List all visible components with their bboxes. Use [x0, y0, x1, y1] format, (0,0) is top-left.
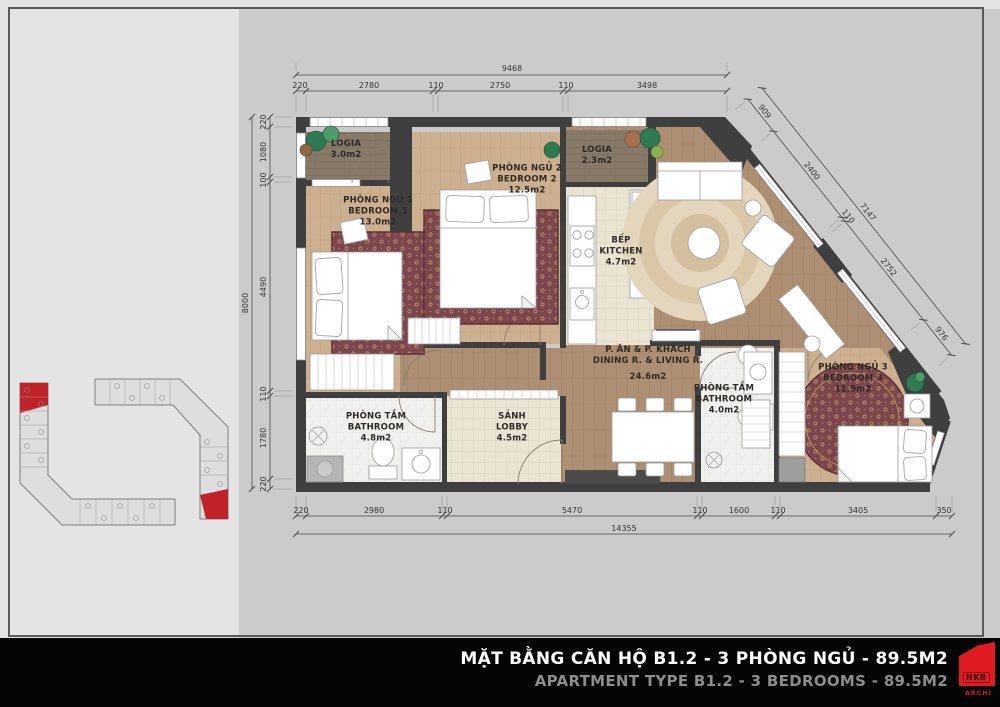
sheet-title-en: APARTMENT TYPE B1.2 - 3 BEDROOMS - 89.5M…	[535, 672, 948, 690]
svg-text:5470: 5470	[562, 506, 582, 515]
svg-text:3405: 3405	[848, 506, 868, 515]
bedroom1-wardrobe	[310, 354, 394, 390]
svg-text:9468: 9468	[502, 64, 522, 73]
key-plan	[20, 379, 228, 525]
living-sofa	[658, 162, 742, 200]
logia2-window	[572, 118, 646, 127]
bathroom1-washer	[307, 456, 343, 482]
logia1-door-window	[312, 180, 360, 187]
svg-text:110: 110	[428, 81, 443, 90]
dimension-bottom: 220 2980 110 5470 110 1600 110 3405 350 …	[293, 496, 955, 537]
svg-text:110: 110	[437, 506, 452, 515]
label-bedroom1: PHÒNG NGỦ 1 BEDROOM 1 13.0m2	[343, 195, 413, 228]
bedroom2-nightstand	[464, 160, 491, 184]
svg-text:3498: 3498	[637, 81, 657, 90]
label-bedroom3: PHÒNG NGỦ 3 BEDROOM 3 11.9m2	[818, 362, 888, 395]
svg-text:220: 220	[293, 506, 308, 515]
svg-text:220: 220	[259, 114, 268, 129]
label-bathroom2: PHÒNG TẮM BATHROOM 4.0m2	[694, 383, 754, 416]
living-side-table	[745, 200, 761, 216]
bedroom3-wardrobe	[779, 352, 805, 456]
dining-table	[612, 398, 694, 476]
svg-text:2780: 2780	[359, 81, 379, 90]
dimension-top: 9468 220 2780 110 2750 110 3498	[292, 62, 730, 112]
svg-text:350: 350	[936, 506, 951, 515]
svg-text:220: 220	[259, 476, 268, 491]
label-living: P. ĂN & P. KHÁCH DINING R. & LIVING R. 2…	[593, 345, 703, 383]
floor-plan-sheet: 9468 220 2780 110 2750 110 3498 8000	[0, 0, 1000, 707]
svg-text:110: 110	[770, 506, 785, 515]
logia1-window	[310, 118, 388, 127]
bedroom2-wardrobe	[408, 318, 460, 344]
label-kitchen: BẾP KITCHEN 4.7m2	[599, 235, 642, 268]
studio-logo: NKB	[959, 642, 995, 686]
label-logia2: LOGIA 2.3m2	[582, 145, 613, 167]
svg-text:1780: 1780	[259, 428, 268, 448]
svg-text:2750: 2750	[490, 81, 510, 90]
console-chair	[804, 336, 820, 352]
label-logia1: LOGIA 3.0m2	[331, 139, 362, 161]
bedroom3-cabinet	[779, 458, 805, 482]
svg-text:14355: 14355	[611, 524, 636, 533]
bathroom1-vanity	[402, 448, 440, 480]
bedroom2-bed	[440, 190, 536, 308]
bedroom3-nightstand	[904, 394, 930, 418]
svg-text:8000: 8000	[241, 293, 250, 313]
plan-drawing: 9468 220 2780 110 2750 110 3498 8000	[0, 0, 1000, 707]
svg-text:110: 110	[558, 81, 573, 90]
plant-bedroom2	[544, 142, 560, 158]
svg-text:220: 220	[292, 81, 307, 90]
label-lobby: SẢNH LOBBY 4.5m2	[496, 411, 528, 444]
svg-text:909: 909	[756, 103, 773, 121]
bedroom1-bed	[312, 252, 402, 340]
svg-text:2980: 2980	[364, 506, 384, 515]
logo-text: NKB	[963, 672, 990, 683]
living-coffee-table	[688, 227, 720, 259]
lobby-shoe-cabinet	[450, 390, 558, 399]
bedroom3-bed	[838, 426, 932, 482]
sheet-title-vi: MẶT BẰNG CĂN HỘ B1.2 - 3 PHÒNG NGỦ - 89.…	[460, 649, 948, 669]
label-bedroom2: PHÒNG NGỦ 2 BEDROOM 2 12.5m2	[492, 163, 562, 196]
svg-text:1600: 1600	[729, 506, 749, 515]
svg-text:4490: 4490	[259, 277, 268, 297]
svg-text:110: 110	[840, 208, 857, 226]
svg-text:1080: 1080	[259, 142, 268, 162]
label-bathroom1: PHÒNG TẮM BATHROOM 4.8m2	[346, 411, 406, 444]
logo-subtext: ARCHI	[965, 690, 992, 697]
dimension-left: 8000 220 1080 100 4490 110 1780 220	[241, 114, 292, 492]
bedroom1-window	[297, 248, 306, 360]
title-bar: MẶT BẰNG CĂN HỘ B1.2 - 3 PHÒNG NGỦ - 89.…	[0, 638, 1000, 707]
tv-console	[652, 330, 700, 341]
svg-text:100: 100	[259, 172, 268, 187]
svg-text:110: 110	[259, 386, 268, 401]
svg-text:976: 976	[933, 325, 950, 343]
svg-text:110: 110	[692, 506, 707, 515]
